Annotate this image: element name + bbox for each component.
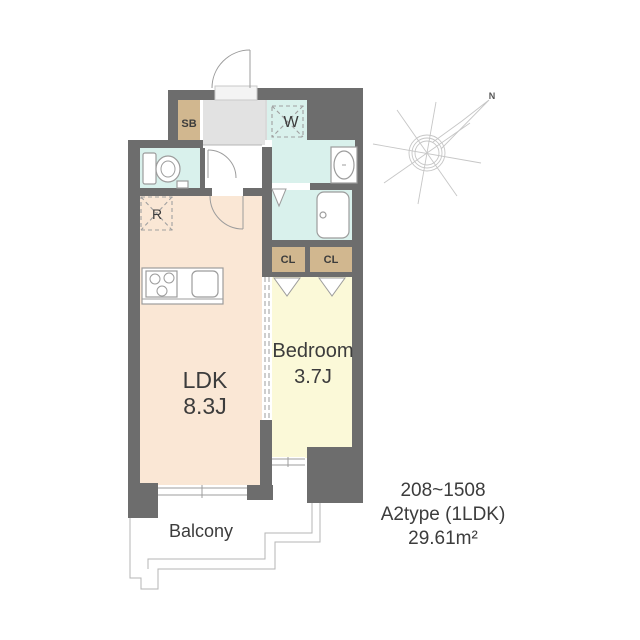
toilet-tank: [143, 153, 156, 184]
closet-right-label: CL: [324, 254, 339, 266]
entry-threshold: [215, 86, 257, 100]
wall: [243, 188, 262, 196]
floor-plan: N SB W R CL CL LDK 8.3J Bedroom 3.7J Bal…: [0, 0, 640, 640]
bedroom-room: [272, 447, 307, 458]
closet-left-label: CL: [281, 254, 296, 266]
bathtub-drain: [320, 212, 326, 218]
wall: [200, 148, 205, 188]
wall: [128, 140, 140, 518]
bedroom-window: [272, 457, 305, 467]
wall: [262, 147, 272, 187]
wall: [257, 88, 307, 100]
wall: [352, 277, 363, 447]
north-label: N: [489, 91, 496, 101]
wall: [262, 272, 352, 277]
wall: [262, 240, 352, 247]
wall: [305, 246, 310, 272]
sliding-door-track: [262, 277, 272, 420]
wall: [352, 188, 363, 277]
washer-label: W: [283, 114, 299, 131]
ldk-room: [140, 196, 262, 487]
refrigerator-label: R: [152, 206, 162, 222]
wall: [307, 88, 363, 140]
bedroom-size-label: 3.7J: [294, 366, 332, 388]
shoe-box-label: SB: [181, 118, 196, 130]
unit-type: A2type (1LDK): [381, 504, 506, 525]
wall: [310, 183, 357, 190]
ldk-window: [158, 485, 247, 498]
unit-floors: 208~1508: [400, 480, 485, 501]
floor-plan-page: N SB W R CL CL LDK 8.3J Bedroom 3.7J Bal…: [0, 0, 640, 640]
wall: [307, 447, 363, 503]
washbasin-icon: [331, 147, 357, 183]
wall: [140, 188, 212, 196]
wall: [168, 90, 178, 148]
toilet-control: [177, 181, 188, 188]
kitchen-icon: [142, 268, 223, 304]
wall: [247, 485, 273, 500]
ldk-label: LDK: [183, 367, 228, 393]
bathtub-icon: [317, 192, 349, 238]
toilet-bowl: [156, 156, 180, 182]
ldk-size-label: 8.3J: [183, 393, 226, 419]
unit-area: 29.61m²: [408, 528, 478, 549]
bedroom-label: Bedroom: [272, 340, 353, 362]
sink-icon: [192, 271, 218, 297]
wall: [262, 187, 272, 240]
balcony-label: Balcony: [169, 521, 233, 541]
bedroom-room: [272, 277, 352, 447]
wall: [128, 483, 158, 518]
entry-hall: [203, 100, 265, 145]
sliding-door: [262, 277, 272, 420]
